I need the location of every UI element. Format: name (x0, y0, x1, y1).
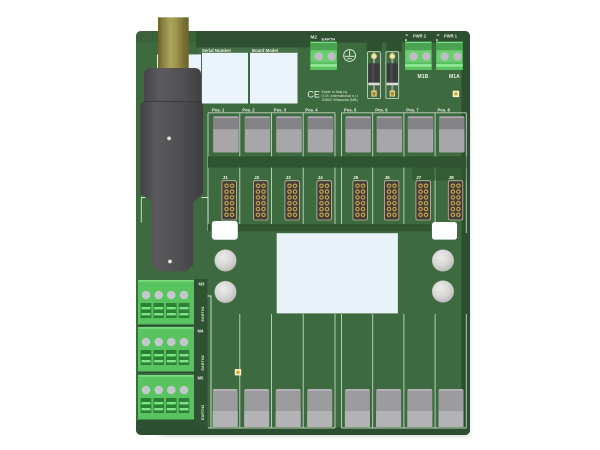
svg-text:M3: M3 (199, 282, 205, 287)
svg-text:Pos. 4: Pos. 4 (305, 108, 318, 113)
svg-text:Pos. 8: Pos. 8 (438, 108, 451, 113)
svg-text:M2: M2 (311, 35, 318, 40)
svg-text:M1B: M1B (418, 74, 429, 80)
svg-text:J3: J3 (286, 175, 292, 181)
svg-text:EARTH2: EARTH2 (201, 355, 205, 370)
svg-text:Serial Number: Serial Number (202, 48, 231, 53)
svg-text:J1: J1 (223, 175, 229, 181)
svg-text:J8: J8 (449, 175, 455, 181)
svg-text:M4: M4 (198, 329, 204, 334)
svg-text:Pos. 7: Pos. 7 (406, 108, 419, 113)
svg-text:PWR 1: PWR 1 (444, 34, 458, 39)
svg-text:Pos. 1: Pos. 1 (212, 108, 225, 113)
svg-text:J5: J5 (353, 175, 359, 181)
svg-text:Pos. 5: Pos. 5 (344, 108, 357, 113)
svg-text:Board Model: Board Model (252, 48, 278, 53)
svg-text:J7: J7 (416, 175, 422, 181)
svg-text:EARTH: EARTH (322, 37, 336, 42)
svg-text:Pos. 3: Pos. 3 (274, 108, 287, 113)
svg-text:M5: M5 (198, 376, 204, 381)
svg-text:J6: J6 (385, 175, 391, 181)
svg-text:20852 Villasanta (MB): 20852 Villasanta (MB) (322, 98, 358, 102)
svg-text:PWR 2: PWR 2 (413, 34, 427, 39)
svg-text:Pos. 2: Pos. 2 (242, 108, 255, 113)
svg-text:CE: CE (307, 90, 320, 100)
svg-text:EARTH3: EARTH3 (201, 405, 205, 420)
svg-text:EARTH1: EARTH1 (201, 306, 205, 321)
svg-text:Pos. 6: Pos. 6 (375, 108, 388, 113)
svg-text:M1A: M1A (449, 74, 460, 80)
svg-text:J4: J4 (318, 175, 324, 181)
svg-text:J2: J2 (254, 175, 260, 181)
